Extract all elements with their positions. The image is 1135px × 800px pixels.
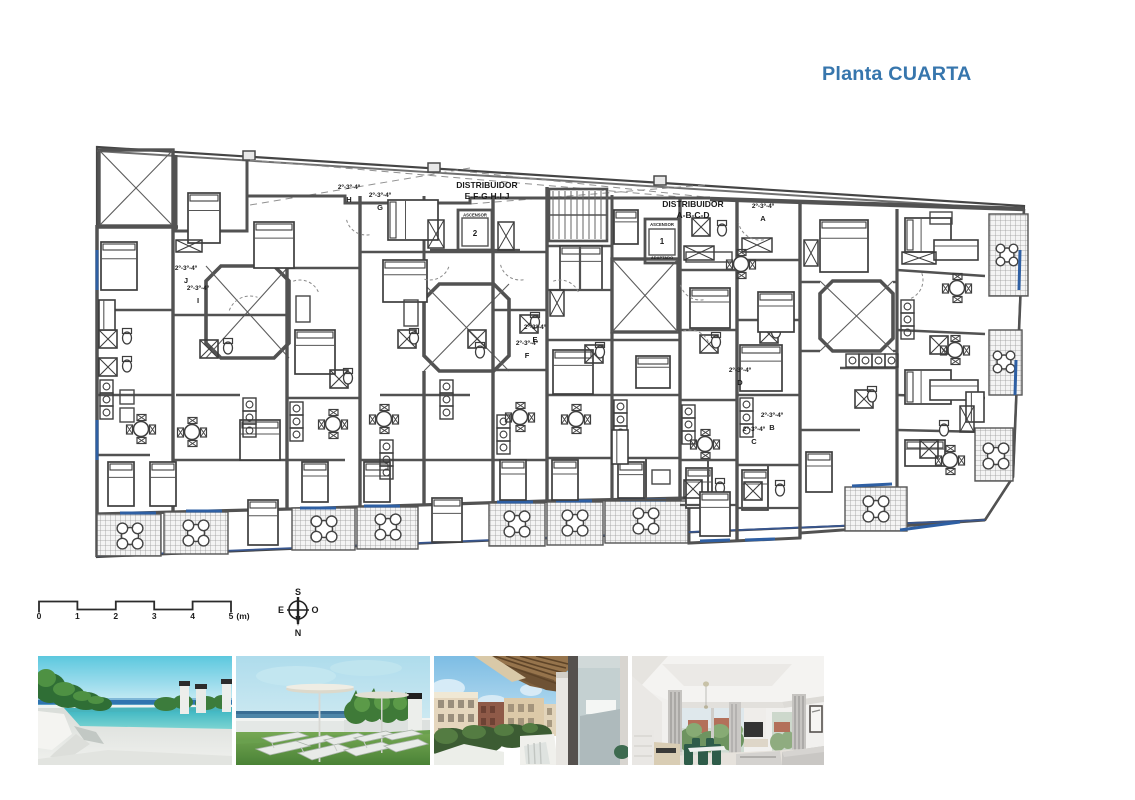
svg-text:A-B-C-D: A-B-C-D (676, 210, 709, 220)
svg-text:5: 5 (229, 611, 234, 621)
svg-text:E: E (278, 605, 284, 615)
svg-text:C: C (751, 437, 757, 446)
svg-text:O: O (311, 605, 318, 615)
svg-text:2º-3º-4º: 2º-3º-4º (761, 412, 784, 419)
svg-text:1: 1 (75, 611, 80, 621)
svg-text:(m): (m) (236, 611, 249, 621)
svg-text:2º-3º-4º: 2º-3º-4º (729, 367, 752, 374)
svg-text:DISTRIBUIDOR: DISTRIBUIDOR (456, 180, 517, 190)
svg-text:2: 2 (473, 229, 478, 238)
svg-text:0: 0 (37, 611, 42, 621)
svg-text:D: D (737, 378, 743, 387)
svg-text:N: N (295, 628, 302, 638)
svg-text:2º-3º-4º: 2º-3º-4º (187, 285, 210, 292)
svg-text:G: G (377, 203, 383, 212)
svg-text:B: B (769, 423, 775, 432)
svg-text:ASCENSOR: ASCENSOR (650, 222, 674, 227)
svg-text:A: A (760, 214, 766, 223)
svg-text:2º-3º-4º: 2º-3º-4º (175, 265, 198, 272)
svg-text:I: I (197, 296, 199, 305)
svg-text:S: S (295, 587, 301, 597)
svg-text:2º-3º-4º: 2º-3º-4º (516, 340, 539, 347)
svg-text:DISTRIBUIDOR: DISTRIBUIDOR (662, 199, 723, 209)
svg-text:2º-3º-4º: 2º-3º-4º (369, 192, 392, 199)
svg-text:2º-3º-4º: 2º-3º-4º (752, 203, 775, 210)
svg-text:3: 3 (152, 611, 157, 621)
svg-text:4: 4 (190, 611, 195, 621)
svg-text:H: H (346, 195, 351, 204)
svg-text:2: 2 (113, 611, 118, 621)
svg-text:2º-3º-4º: 2º-3º-4º (524, 324, 547, 331)
svg-text:E-F-G-H-I-J: E-F-G-H-I-J (465, 191, 510, 201)
svg-text:F: F (525, 351, 530, 360)
svg-text:2º-3º-4º: 2º-3º-4º (743, 426, 766, 433)
svg-text:ADAPTADO: ADAPTADO (651, 255, 673, 260)
svg-text:ASCENSOR: ASCENSOR (463, 213, 487, 218)
svg-text:2º-3º-4º: 2º-3º-4º (338, 184, 361, 191)
svg-text:1: 1 (660, 237, 665, 246)
svg-text:J: J (184, 276, 188, 285)
